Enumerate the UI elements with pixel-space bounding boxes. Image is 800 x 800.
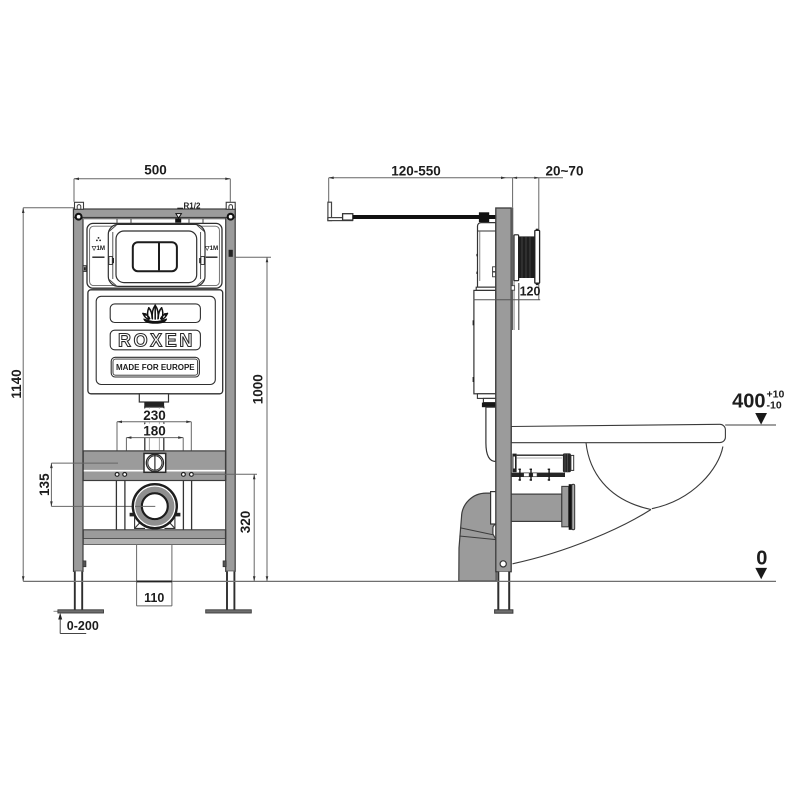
svg-text:230: 230: [143, 408, 166, 423]
svg-text:▽1M: ▽1M: [204, 245, 218, 252]
svg-text:0: 0: [756, 548, 767, 570]
svg-text:180: 180: [143, 424, 166, 439]
svg-text:▽1M: ▽1M: [91, 245, 105, 252]
svg-text:400: 400: [732, 391, 765, 413]
svg-text:135: 135: [37, 473, 52, 496]
svg-text:1140: 1140: [9, 369, 24, 398]
svg-text:20~70: 20~70: [546, 164, 584, 179]
svg-text:320: 320: [238, 511, 253, 534]
svg-text:120-550: 120-550: [391, 163, 441, 178]
svg-text:1000: 1000: [251, 374, 266, 404]
svg-text:500: 500: [144, 162, 167, 177]
svg-text:ROXEN: ROXEN: [118, 331, 195, 351]
svg-text:120: 120: [520, 285, 541, 299]
svg-text:MADE FOR EUROPE: MADE FOR EUROPE: [116, 363, 195, 372]
svg-text:110: 110: [144, 591, 164, 605]
svg-text:0-200: 0-200: [67, 619, 99, 633]
svg-text:R1/2: R1/2: [184, 202, 201, 211]
svg-text:-10: -10: [767, 400, 782, 412]
